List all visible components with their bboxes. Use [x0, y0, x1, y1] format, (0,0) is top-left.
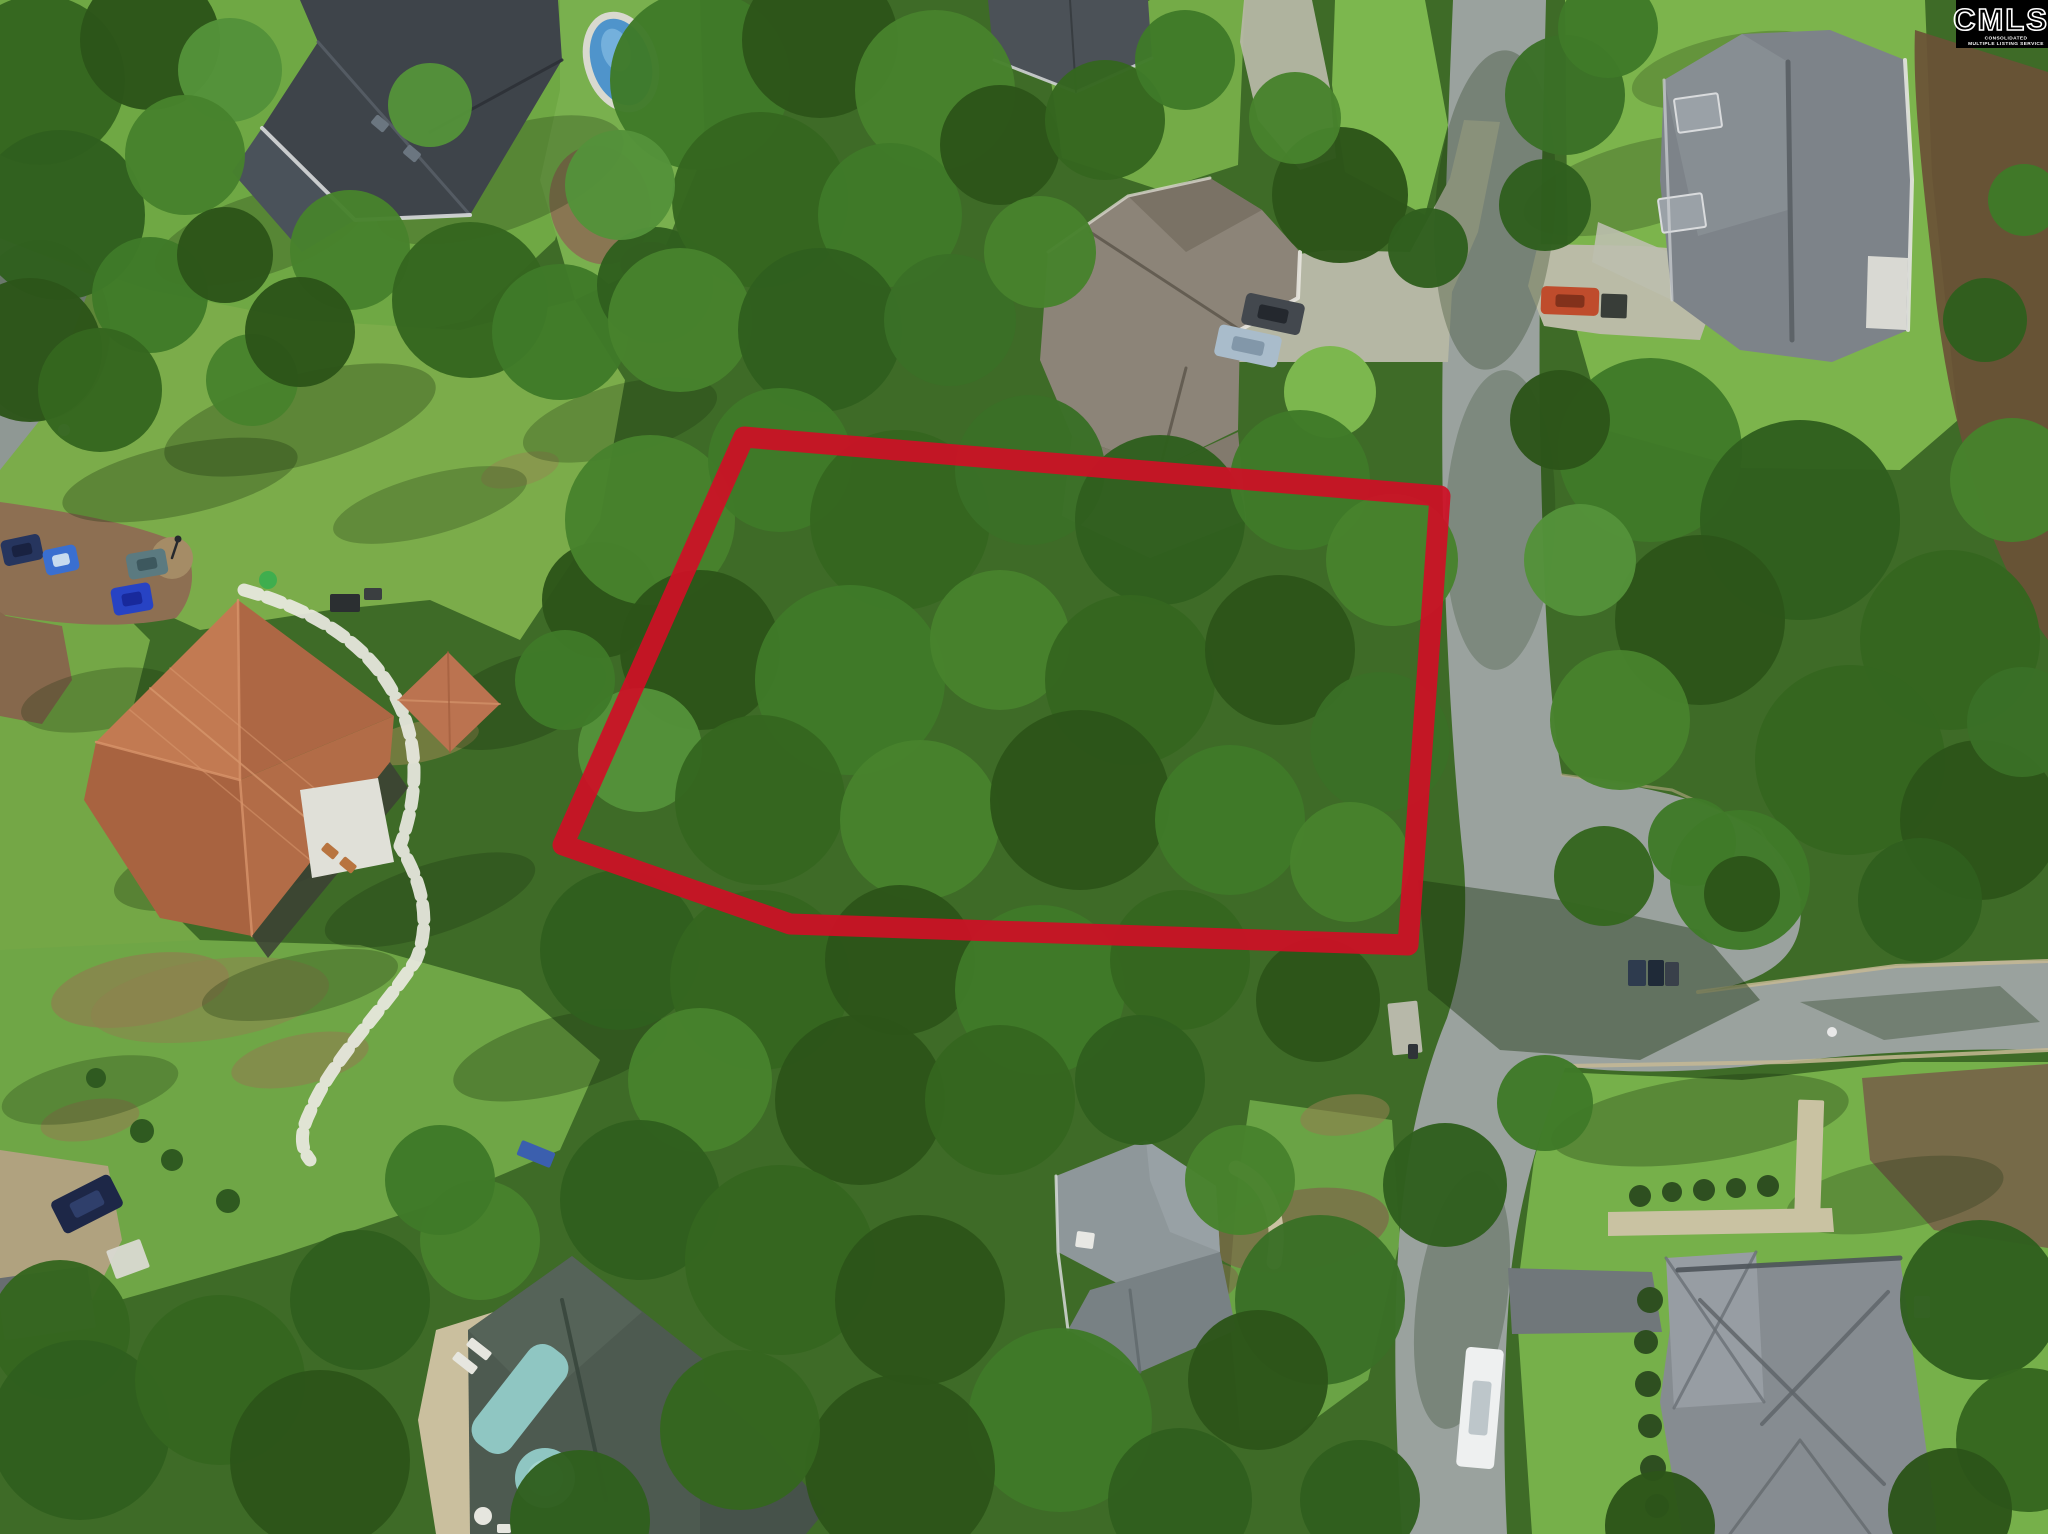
house-top-right	[1658, 30, 1912, 362]
shrub	[86, 1068, 106, 1088]
tree-canopy	[1383, 1123, 1507, 1247]
tree-canopy	[925, 1025, 1075, 1175]
tree-canopy	[385, 1125, 495, 1235]
mailbox-white	[1827, 1027, 1837, 1037]
tree-canopy	[984, 196, 1096, 308]
shrub	[1638, 1414, 1662, 1438]
tree-canopy	[290, 1230, 430, 1370]
tree-canopy	[1249, 72, 1341, 164]
shrub	[1662, 1182, 1682, 1202]
tree-canopy	[1075, 1015, 1205, 1145]
tree-canopy	[1388, 208, 1468, 288]
tree-canopy	[1497, 1055, 1593, 1151]
tree-canopy	[1290, 802, 1410, 922]
tree-canopy	[990, 710, 1170, 890]
deck	[1866, 256, 1908, 330]
mailbox-post	[1408, 1044, 1418, 1059]
tree-canopy	[1550, 650, 1690, 790]
aerial-scene	[0, 0, 2048, 1534]
tree-canopy	[1510, 370, 1610, 470]
tree-canopy	[1110, 890, 1250, 1030]
tree-canopy	[775, 1015, 945, 1185]
tree-canopy	[608, 248, 752, 392]
pickup-red	[1541, 286, 1600, 316]
tree-canopy	[1155, 745, 1305, 895]
tree-canopy	[565, 130, 675, 240]
tree-canopy	[835, 1215, 1005, 1385]
green-umbrella	[259, 571, 277, 589]
shrub	[1634, 1330, 1658, 1354]
shrub	[161, 1149, 183, 1171]
tree-canopy	[1704, 856, 1780, 932]
tree-canopy	[840, 740, 1000, 900]
trash-bin	[1628, 960, 1646, 986]
aerial-photo-canvas: CMLS CONSOLIDATED MULTIPLE LISTING SERVI…	[0, 0, 2048, 1534]
tree-canopy	[940, 85, 1060, 205]
tree-canopy	[177, 207, 273, 303]
shrub	[1637, 1287, 1663, 1313]
shrub	[130, 1119, 154, 1143]
tree-canopy	[125, 95, 245, 215]
tree-canopy	[738, 248, 902, 412]
tree-canopy	[1185, 1125, 1295, 1235]
tree-canopy	[1943, 278, 2027, 362]
grill	[364, 588, 382, 600]
trash-bin	[1648, 960, 1664, 986]
aerial-listing-photo: CMLS CONSOLIDATED MULTIPLE LISTING SERVI…	[0, 0, 2048, 1534]
tree-canopy	[1554, 826, 1654, 926]
pickup-red-glass	[1555, 294, 1584, 308]
chimney	[1075, 1231, 1095, 1249]
walkway-bottom-right-horizontal	[1608, 1208, 1834, 1236]
tree-canopy	[660, 1350, 820, 1510]
tree-canopy	[38, 328, 162, 452]
patio-table	[474, 1507, 492, 1525]
cmls-logo-text: CMLS	[1953, 2, 2048, 37]
tree-canopy	[1135, 10, 1235, 110]
shrub	[1726, 1178, 1746, 1198]
utility-trailer	[1601, 294, 1628, 319]
shrub	[1693, 1179, 1715, 1201]
patio-chair	[497, 1524, 511, 1533]
cmls-sub-line1: CONSOLIDATED	[1985, 36, 2028, 42]
dormer	[1674, 93, 1722, 133]
shrub	[1757, 1175, 1779, 1197]
lamp-post	[175, 536, 182, 543]
tree-canopy	[388, 63, 472, 147]
tree-canopy	[1524, 504, 1636, 616]
dormer	[1658, 193, 1706, 233]
tree-canopy	[1256, 938, 1380, 1062]
patio-table	[330, 594, 360, 612]
tree-canopy	[1499, 159, 1591, 251]
tree-canopy	[675, 715, 845, 885]
trash-bin	[1665, 962, 1679, 986]
cmls-watermark: CMLS CONSOLIDATED MULTIPLE LISTING SERVI…	[1953, 0, 2048, 48]
tree-canopy	[825, 885, 975, 1035]
shrub	[1635, 1371, 1661, 1397]
tree-canopy	[1188, 1310, 1328, 1450]
tree-canopy	[1858, 838, 1982, 962]
tree-canopy	[245, 277, 355, 387]
cmls-sub-line2: MULTIPLE LISTING SERVICE	[1968, 41, 2044, 47]
tree-canopy	[515, 630, 615, 730]
shrub	[216, 1189, 240, 1213]
shrub	[1629, 1185, 1651, 1207]
